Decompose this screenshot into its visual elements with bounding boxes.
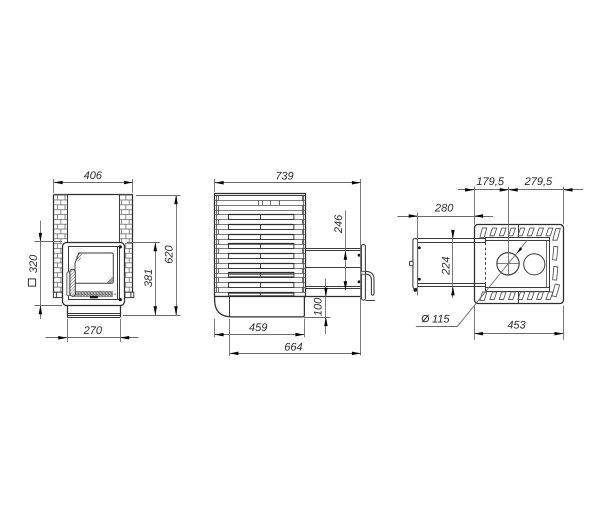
svg-text:453: 453 bbox=[507, 319, 526, 331]
svg-text:100: 100 bbox=[313, 297, 325, 316]
svg-text:664: 664 bbox=[284, 341, 302, 353]
svg-text:620: 620 bbox=[164, 245, 176, 264]
svg-text:406: 406 bbox=[84, 170, 103, 182]
svg-text:739: 739 bbox=[275, 171, 293, 183]
svg-text:459: 459 bbox=[249, 322, 267, 334]
svg-text:270: 270 bbox=[83, 325, 103, 337]
svg-text:115: 115 bbox=[432, 313, 450, 325]
svg-text:224: 224 bbox=[440, 257, 452, 276]
svg-text:279,5: 279,5 bbox=[524, 176, 553, 188]
svg-text:280: 280 bbox=[434, 202, 454, 214]
svg-text:246: 246 bbox=[333, 214, 345, 234]
svg-text:381: 381 bbox=[143, 269, 155, 287]
svg-text:320: 320 bbox=[28, 254, 40, 273]
svg-text:179,5: 179,5 bbox=[476, 176, 504, 188]
